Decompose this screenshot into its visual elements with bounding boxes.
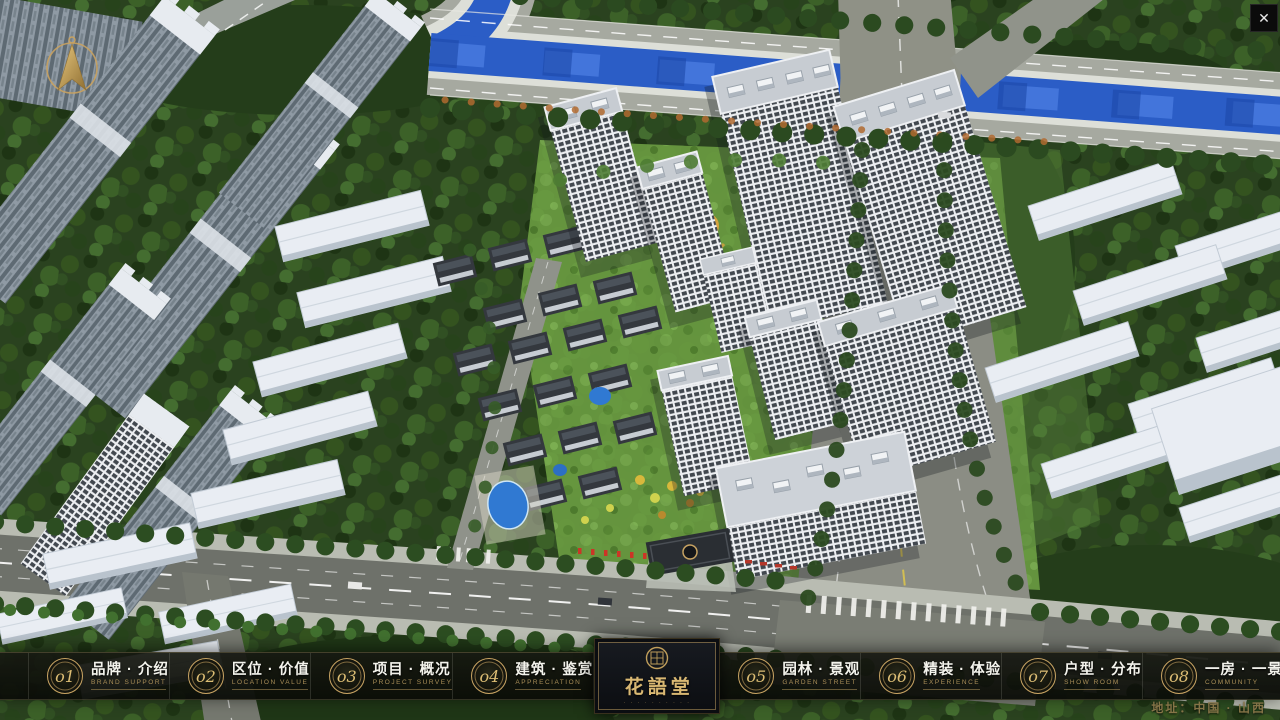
nav-item-title: 精装 · 体验 bbox=[923, 663, 1001, 678]
close-button[interactable]: ✕ bbox=[1250, 4, 1278, 32]
presentation-window: ✕ o1 品牌 · 介绍 BRAND SUPPORT o2 区位 · 价值 LO… bbox=[0, 0, 1280, 720]
nav-number-badge: o3 bbox=[329, 658, 365, 694]
nav-item-architecture[interactable]: o4 建筑 · 鉴赏 APPRECIATION bbox=[453, 653, 594, 699]
nav-item-garden-landscape[interactable]: o5 园林 · 景观 GARDEN STREET bbox=[720, 653, 861, 699]
logo-title: 花語堂 bbox=[621, 672, 694, 699]
nav-item-subtitle: EXPERIENCE bbox=[923, 680, 980, 690]
nav-item-floorplan-distribution[interactable]: o7 户型 · 分布 SHOW ROOM bbox=[1002, 653, 1143, 699]
nav-number-badge: o6 bbox=[879, 658, 915, 694]
project-logo[interactable]: 花語堂 · · · · · · · · · · bbox=[594, 638, 720, 714]
nav-number-badge: o5 bbox=[738, 658, 774, 694]
nav-number-badge: o7 bbox=[1020, 658, 1056, 694]
nav-item-title: 园林 · 景观 bbox=[782, 663, 860, 678]
nav-item-title: 项目 · 概况 bbox=[373, 663, 453, 678]
nav-item-title: 建筑 · 鉴赏 bbox=[515, 663, 593, 678]
seal-emblem-icon bbox=[645, 646, 669, 670]
logo-tagline: · · · · · · · · · · bbox=[624, 701, 691, 706]
nav-item-subtitle: COMMUNITY bbox=[1205, 680, 1259, 690]
nav-item-subtitle: SHOW ROOM bbox=[1064, 680, 1120, 690]
nav-item-title: 区位 · 价值 bbox=[232, 663, 310, 678]
nav-item-title: 一房 · 一景 bbox=[1205, 663, 1280, 678]
close-icon: ✕ bbox=[1258, 11, 1270, 25]
nav-item-decor-experience[interactable]: o6 精装 · 体验 EXPERIENCE bbox=[861, 653, 1002, 699]
nav-item-room-view[interactable]: o8 一房 · 一景 COMMUNITY bbox=[1143, 653, 1280, 699]
address-label: 地址：中国 · 山西 bbox=[1151, 699, 1266, 716]
nav-item-location-value[interactable]: o2 区位 · 价值 LOCATION VALUE bbox=[170, 653, 311, 699]
nav-number-badge: o8 bbox=[1161, 658, 1197, 694]
navbar-left-pad bbox=[0, 653, 29, 699]
nav-item-subtitle: APPRECIATION bbox=[515, 680, 581, 690]
nav-number-badge: o1 bbox=[47, 658, 83, 694]
nav-item-subtitle: GARDEN STREET bbox=[782, 680, 857, 690]
nav-item-subtitle: BRAND SUPPORT bbox=[91, 680, 166, 690]
nav-number-badge: o2 bbox=[188, 658, 224, 694]
nav-item-brand-intro[interactable]: o1 品牌 · 介绍 BRAND SUPPORT bbox=[29, 653, 170, 699]
bottom-navbar: o1 品牌 · 介绍 BRAND SUPPORT o2 区位 · 价值 LOCA… bbox=[0, 652, 1280, 700]
nav-number-badge: o4 bbox=[471, 658, 507, 694]
nav-item-subtitle: LOCATION VALUE bbox=[232, 680, 308, 690]
nav-item-title: 品牌 · 介绍 bbox=[91, 663, 169, 678]
nav-item-title: 户型 · 分布 bbox=[1064, 663, 1142, 678]
aerial-map-viewport[interactable] bbox=[0, 0, 1280, 720]
nav-item-project-overview[interactable]: o3 项目 · 概况 PROJECT SURVEY bbox=[311, 653, 454, 699]
nav-item-subtitle: PROJECT SURVEY bbox=[373, 680, 453, 690]
